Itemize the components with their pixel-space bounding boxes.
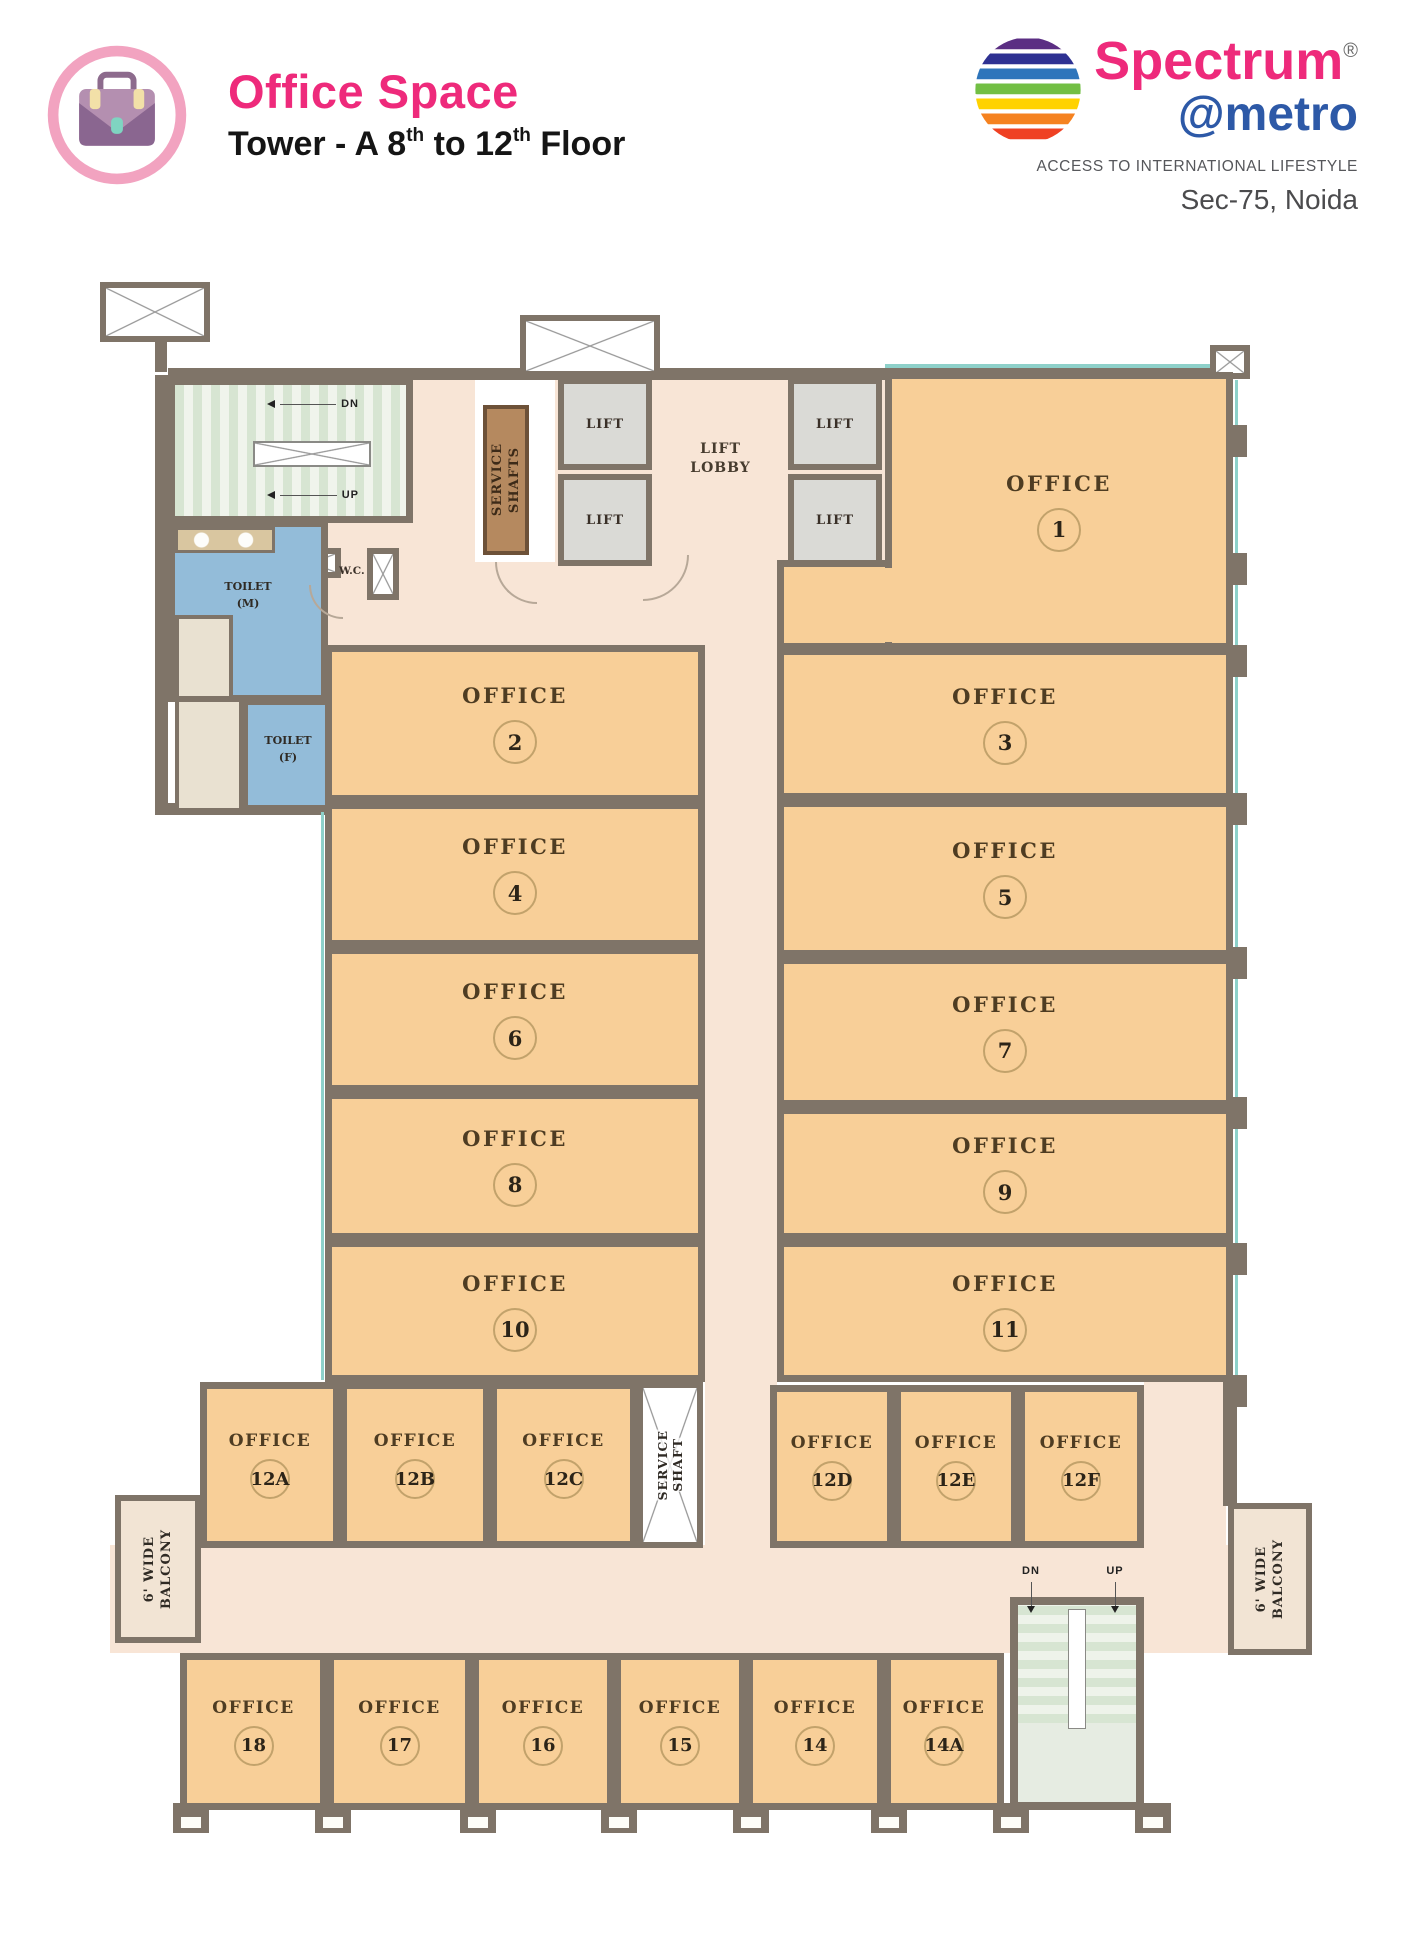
office-number: 12F — [1061, 1461, 1101, 1501]
lift-4: LIFT — [788, 474, 882, 566]
leader-line — [1115, 1582, 1116, 1606]
logo-location: Sec-75, Noida — [898, 184, 1358, 216]
lift-3: LIFT — [788, 378, 882, 470]
pilaster — [1231, 645, 1247, 677]
balcony-right-label2: BALCONY — [1271, 1539, 1286, 1619]
office-label: OFFICE — [915, 1433, 997, 1453]
office-17-room: OFFICE17 — [327, 1653, 472, 1810]
office-label: OFFICE — [952, 1133, 1058, 1158]
leader-line — [1031, 1582, 1032, 1606]
pilaster — [1231, 793, 1247, 825]
office-1-annex — [777, 560, 893, 650]
office-9-room: OFFICE9 — [777, 1107, 1233, 1240]
page: Office Space Tower - A 8th to 12th Floor… — [0, 0, 1414, 1937]
office-number: 7 — [983, 1029, 1027, 1073]
logo-tagline: ACCESS TO INTERNATIONAL LIFESTYLE — [898, 158, 1358, 176]
subtitle-part: to 12 — [424, 125, 513, 163]
office-6-room: OFFICE6 — [325, 947, 705, 1092]
office-12D-room: OFFICE12D — [770, 1385, 894, 1548]
staircase-bottom — [1010, 1597, 1144, 1810]
office-11-room: OFFICE11 — [777, 1240, 1233, 1382]
office-2-room: OFFICE2 — [325, 645, 705, 802]
stair-up-marker-bottom: UP — [1095, 1561, 1135, 1613]
window-band-office1-top — [885, 364, 1233, 368]
subtitle-part: Floor — [531, 125, 625, 163]
toilet-women: TOILET (F) — [241, 698, 335, 812]
subtitle-sup: th — [513, 125, 531, 146]
office-number: 12C — [544, 1459, 584, 1499]
column-footing — [1135, 1803, 1171, 1833]
stair-up-marker: UP — [267, 489, 359, 501]
subtitle-sup: th — [406, 125, 424, 146]
office-label: OFFICE — [462, 834, 568, 859]
office-number: 8 — [493, 1163, 537, 1207]
lift-lobby-label: LIFT LOBBY — [668, 440, 773, 478]
shaft-box-top-left-stub — [155, 340, 167, 372]
page-subtitle: Tower - A 8th to 12th Floor — [228, 125, 625, 164]
pilaster — [1231, 947, 1247, 979]
office-label: OFFICE — [502, 1698, 584, 1718]
office-label: OFFICE — [1006, 471, 1112, 496]
toilet-m-label2: (M) — [237, 597, 260, 610]
lift-1: LIFT — [558, 378, 652, 470]
column-footing — [315, 1803, 351, 1833]
leader-line — [280, 404, 336, 405]
office-number: 1 — [1037, 508, 1081, 552]
office-4-room: OFFICE4 — [325, 802, 705, 947]
office-10-room: OFFICE10 — [325, 1240, 705, 1382]
office-1-opening — [880, 568, 895, 642]
toilet-m-label: TOILET — [224, 580, 271, 593]
office-number: 6 — [493, 1016, 537, 1060]
pilaster — [1231, 1097, 1247, 1129]
office-16-room: OFFICE16 — [472, 1653, 614, 1810]
column-footing — [460, 1803, 496, 1833]
toilet-f-label2: (F) — [279, 751, 297, 764]
arrow-left-icon — [267, 400, 275, 408]
office-number: 4 — [493, 871, 537, 915]
shower-area-m — [175, 615, 233, 700]
office-label: OFFICE — [1040, 1433, 1122, 1453]
toilet-f-label: TOILET — [264, 734, 311, 747]
office-number: 5 — [983, 875, 1027, 919]
column-footing — [601, 1803, 637, 1833]
dn-label: DN — [1022, 1565, 1040, 1577]
dn-label: DN — [341, 398, 359, 410]
wc-label: W.C. — [339, 565, 365, 577]
office-number: 18 — [234, 1726, 274, 1766]
service-shafts-label1: SERVICE — [490, 443, 505, 516]
office-label: OFFICE — [462, 1271, 568, 1296]
office-label: OFFICE — [791, 1433, 873, 1453]
office-number: 12D — [812, 1461, 852, 1501]
office-7-room: OFFICE7 — [777, 957, 1233, 1107]
service-shaft-label1: SERVICE — [655, 1430, 670, 1501]
floor-plan: DN UP TOILET (M) TOILET (F) W.C. SERVICE… — [95, 255, 1310, 1865]
stair-dn-marker-bottom: DN — [1011, 1561, 1051, 1613]
pilaster — [1231, 1375, 1247, 1407]
shaft-box-top-left — [100, 282, 210, 342]
office-label: OFFICE — [952, 1271, 1058, 1296]
office-label: OFFICE — [522, 1431, 604, 1451]
service-shafts: SERVICE SHAFTS — [483, 405, 529, 555]
office-number: 17 — [380, 1726, 420, 1766]
balcony-left: 6' WIDE BALCONY — [115, 1495, 201, 1643]
office-number: 12B — [395, 1459, 435, 1499]
office-14A-room: OFFICE14A — [884, 1653, 1004, 1810]
corridor-central — [705, 375, 777, 1545]
registered-mark: ® — [1343, 40, 1358, 62]
stair-landing — [253, 441, 371, 467]
office-14-room: OFFICE14 — [746, 1653, 884, 1810]
spectrum-globe-icon — [972, 34, 1084, 146]
page-title: Office Space — [228, 64, 625, 119]
office-12F-room: OFFICE12F — [1018, 1385, 1144, 1548]
lift-2: LIFT — [558, 474, 652, 566]
up-label: UP — [342, 489, 359, 501]
pilaster — [1231, 425, 1247, 457]
balcony-right-label1: 6' WIDE — [1254, 1546, 1269, 1612]
column-footing — [993, 1803, 1029, 1833]
balcony-right: 6' WIDE BALCONY — [1228, 1503, 1312, 1655]
leader-line — [280, 495, 337, 496]
office-number: 15 — [660, 1726, 700, 1766]
office-3-room: OFFICE3 — [777, 648, 1233, 800]
office-number: 14A — [924, 1726, 964, 1766]
logo-sub-brand: @metro — [1094, 91, 1358, 139]
office-12E-room: OFFICE12E — [894, 1385, 1018, 1548]
column-footing — [173, 1803, 209, 1833]
office-number: 10 — [493, 1308, 537, 1352]
office-label: OFFICE — [462, 1126, 568, 1151]
stair-spine — [1068, 1609, 1086, 1729]
office-label: OFFICE — [952, 838, 1058, 863]
shower-area-f — [175, 698, 243, 812]
lift-lobby-line1: LIFT — [700, 441, 741, 457]
shaft-box-near-wc-2 — [367, 548, 399, 600]
office-number: 16 — [523, 1726, 563, 1766]
service-shafts-label2: SHAFTS — [507, 447, 522, 513]
wall-left-upper — [155, 375, 168, 815]
office-number: 3 — [983, 721, 1027, 765]
office-label: OFFICE — [903, 1698, 985, 1718]
office-label: OFFICE — [952, 992, 1058, 1017]
pilaster — [1231, 553, 1247, 585]
office-label: OFFICE — [229, 1431, 311, 1451]
office-12C-room: OFFICE12C — [490, 1382, 637, 1548]
corridor-right-of-12F — [1144, 1380, 1226, 1550]
service-shaft-label2: SHAFT — [670, 1438, 685, 1492]
office-label: OFFICE — [639, 1698, 721, 1718]
arrow-left-icon — [267, 491, 275, 499]
office-number: 2 — [493, 720, 537, 764]
office-8-room: OFFICE8 — [325, 1092, 705, 1240]
service-shaft-12: SERVICE SHAFT — [637, 1382, 703, 1548]
balcony-left-label1: 6' WIDE — [142, 1536, 157, 1602]
arrow-down-icon — [1027, 1606, 1035, 1613]
office-number: 11 — [983, 1308, 1027, 1352]
pilaster — [1231, 1243, 1247, 1275]
office-label: OFFICE — [462, 979, 568, 1004]
stair-dn-marker: DN — [267, 398, 359, 410]
office-1-room: OFFICE1 — [885, 372, 1233, 650]
office-15-room: OFFICE15 — [614, 1653, 746, 1810]
office-label: OFFICE — [212, 1698, 294, 1718]
balcony-left-label2: BALCONY — [159, 1529, 174, 1609]
column-footing — [871, 1803, 907, 1833]
arrow-down-icon — [1111, 1606, 1119, 1613]
logo-brand: Spectrum® — [1094, 34, 1358, 89]
office-number: 12A — [250, 1459, 290, 1499]
up-label: UP — [1106, 1565, 1123, 1577]
office-18-room: OFFICE18 — [180, 1653, 327, 1810]
office-label: OFFICE — [358, 1698, 440, 1718]
column-footing — [733, 1803, 769, 1833]
office-12B-room: OFFICE12B — [340, 1382, 490, 1548]
subtitle-part: Tower - A 8 — [228, 125, 406, 163]
office-number: 14 — [795, 1726, 835, 1766]
office-number: 12E — [936, 1461, 976, 1501]
office-number: 9 — [983, 1170, 1027, 1214]
sink-counter — [175, 527, 275, 553]
office-12A-room: OFFICE12A — [200, 1382, 340, 1548]
window-band-right-wall — [1235, 380, 1238, 1380]
briefcase-icon — [46, 44, 188, 186]
lift-lobby-line2: LOBBY — [690, 460, 750, 476]
office-label: OFFICE — [774, 1698, 856, 1718]
office-label: OFFICE — [374, 1431, 456, 1451]
header-titles: Office Space Tower - A 8th to 12th Floor — [228, 64, 625, 164]
shaft-box-top-center — [520, 315, 660, 377]
office-label: OFFICE — [462, 683, 568, 708]
office-label: OFFICE — [952, 684, 1058, 709]
office-5-room: OFFICE5 — [777, 800, 1233, 957]
spectrum-metro-logo: Spectrum® @metro ACCESS TO INTERNATIONAL… — [898, 34, 1358, 216]
